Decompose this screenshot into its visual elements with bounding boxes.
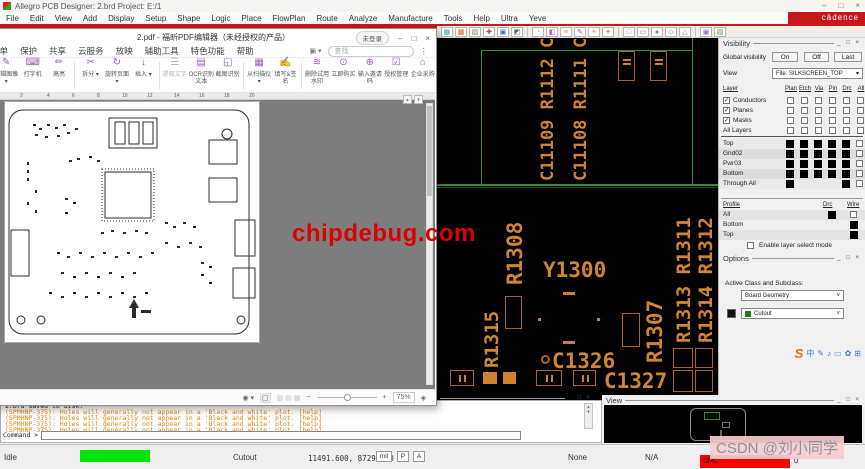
allegro-toolbar-icon[interactable]: ◔: [532, 27, 544, 37]
pdf-tool-label: 删除试用水印: [304, 72, 330, 85]
pdf-tool-icon: ✂: [77, 60, 103, 72]
refdes-column-c11108-r1111[interactable]: C11108 R1111 C1111: [573, 38, 590, 181]
visibility-cell[interactable]: [857, 97, 864, 104]
visibility-cell[interactable]: [786, 180, 794, 188]
pdf-tool-截图识别[interactable]: ◱截图识别: [214, 60, 240, 79]
allegro-menu-display[interactable]: Display: [108, 14, 134, 23]
board-outline-right: [692, 38, 693, 186]
refdes-r1308[interactable]: R1308: [505, 222, 526, 285]
visibility-cell[interactable]: [843, 107, 850, 114]
pdf-tool-icon: ⌂: [410, 60, 436, 72]
visibility-cell[interactable]: [786, 170, 794, 178]
visibility-cell[interactable]: [815, 97, 822, 104]
class-row-label: Conductors: [733, 97, 766, 104]
pdf-menu-保护[interactable]: 保护: [20, 45, 37, 57]
allegro-toolbar-icon[interactable]: □: [623, 27, 635, 37]
preview-detail: [722, 422, 730, 428]
visibility-cell[interactable]: [842, 160, 850, 168]
allegro-menu-yeve[interactable]: Yeve: [529, 14, 547, 23]
visibility-cell[interactable]: [843, 117, 850, 124]
allegro-toolbar-icon[interactable]: ●: [651, 27, 663, 37]
pdf-tool-icon: ⌨: [19, 60, 45, 72]
pdf-tool-icon: ▦: [246, 60, 272, 72]
page-nav-buttons[interactable]: ▴ ▾: [403, 95, 423, 104]
visibility-cell[interactable]: [801, 97, 808, 104]
options-window-buttons[interactable]: _ □ ×: [837, 255, 861, 261]
profile-col-wire: Wire: [847, 202, 859, 208]
layer-row-label: Bottom: [723, 170, 744, 177]
view-select[interactable]: File: SILKSCREEN_TOP▾: [772, 68, 863, 79]
pdf-tool-label: 立即购买: [330, 72, 356, 79]
pdf-tool-label: 截图识别: [214, 72, 240, 79]
pdf-title-text: 2.pdf - 福昕PDF编辑器（未经授权的产品）: [137, 32, 290, 43]
visibility-cell[interactable]: [857, 127, 864, 134]
allegro-menu-tools[interactable]: Tools: [444, 14, 463, 23]
class-row-planes: ✓Planes: [719, 106, 865, 116]
component-outline-r1308[interactable]: [505, 296, 522, 329]
grid-header-all: All: [853, 86, 865, 92]
pdf-tool-插入[interactable]: ↓插入 ▾: [130, 60, 156, 79]
allegro-window-controls: –□×: [822, 1, 860, 10]
allegro-toolbar-icon[interactable]: ▣: [497, 27, 509, 37]
visibility-cell[interactable]: [842, 170, 850, 178]
visibility-cell[interactable]: [856, 140, 863, 147]
visibility-cell[interactable]: [829, 127, 836, 134]
pdf-window-control-icon[interactable]: ×: [425, 34, 430, 43]
visibility-cell[interactable]: [800, 150, 808, 158]
visibility-cell[interactable]: [787, 117, 794, 124]
refdes-c1327[interactable]: C1327: [604, 371, 667, 392]
refdes-column-r1314-r1312[interactable]: R1314 R1312: [697, 217, 716, 343]
pdf-toolbar: ✎编辑图像 ▾⌨打字机✏高亮✂拆分 ▾↻旋转页面 ▾↓插入 ▾☰提取文字▤OCR…: [0, 58, 436, 93]
visibility-title-text: Visibility: [723, 39, 750, 48]
visibility-cell[interactable]: [857, 107, 864, 114]
pdf-titlebar[interactable]: 2.pdf - 福昕PDF编辑器（未经授权的产品） 未登录 –□×: [0, 29, 436, 45]
layout-toggle-icon[interactable]: ▣ ▾: [309, 47, 321, 55]
profile-row-label: Top: [723, 231, 733, 238]
hand-tool-icon[interactable]: ◉ ▾: [242, 394, 254, 402]
cadence-logo: cādence: [788, 12, 865, 24]
visibility-cell[interactable]: [850, 211, 857, 218]
layer-row-through-all: Through All: [719, 179, 865, 189]
pdf-menu-共享[interactable]: 共享: [49, 45, 66, 57]
component-outline[interactable]: [618, 51, 635, 81]
pdf-tool-icon: ≋: [304, 60, 330, 72]
ruler-number: 20: [249, 93, 255, 99]
pdf-tool-授权管理[interactable]: ☑授权管理: [383, 60, 409, 79]
options-panel-title: Options _ □ ×: [719, 253, 865, 263]
allegro-toolbar-icon[interactable]: ▩: [455, 27, 467, 37]
view-panel-title-text: View: [606, 396, 622, 405]
refdes-column-c11109-r1112[interactable]: C11109 R1112 C1110: [540, 38, 557, 181]
window-control-icon[interactable]: ×: [855, 1, 860, 10]
status-command: Cutout: [233, 453, 257, 462]
single-page-view-icon[interactable]: ▢: [260, 393, 271, 403]
pdf-window-control-icon[interactable]: –: [398, 34, 402, 43]
view-label: View: [723, 70, 737, 77]
ime-mode-icon[interactable]: 中: [806, 348, 814, 359]
subclass-swatch: [745, 311, 751, 317]
pdf-tool-编辑图像[interactable]: ✎编辑图像 ▾: [0, 60, 19, 85]
visibility-cell[interactable]: [850, 221, 858, 229]
board-outline-left: [481, 50, 482, 184]
visibility-cell[interactable]: [801, 107, 808, 114]
chipdebug-watermark: chipdebug.com: [292, 220, 476, 248]
visibility-cell[interactable]: [829, 97, 836, 104]
visibility-cell[interactable]: [814, 160, 822, 168]
allegro-toolbar-icon[interactable]: ✎: [574, 27, 586, 37]
pdf-bottom-bar: ◉ ▾ ▢ ▥ ▤ ▦ − + 75% ◈: [0, 389, 436, 405]
ruler-number: 10: [122, 93, 128, 99]
pdf-tool-提取文字[interactable]: ☰提取文字: [162, 60, 188, 79]
class-row-label: Masks: [733, 117, 752, 124]
pdf-tool-label: 高亮: [46, 72, 72, 79]
screen: Allegro PCB Designer: 2.brd Project: E:/…: [0, 0, 865, 469]
visibility-on-button[interactable]: On: [772, 52, 798, 62]
pdf-menu-表单[interactable]: 表单: [0, 45, 8, 57]
visibility-cell[interactable]: [801, 127, 808, 134]
visibility-cell[interactable]: [814, 150, 822, 158]
ime-menu-icon[interactable]: ⊞: [854, 349, 861, 358]
profile-col-drc: Drc: [823, 202, 832, 208]
ime-skin-icon[interactable]: ✿: [845, 349, 852, 358]
pdf-tool-label: 提取文字: [162, 72, 188, 79]
command-console[interactable]: 2.brd saved to disk.(SPMHNP-375): Holes …: [0, 400, 602, 443]
pdf-tool-label: 旋转页面 ▾: [104, 72, 130, 85]
pdf-tool-打字机[interactable]: ⌨打字机: [19, 60, 45, 79]
profile-row-top: Top: [719, 230, 865, 240]
allegro-menubar: FileEditViewAddDisplaySetupShapeLogicPla…: [0, 12, 788, 24]
ime-keyboard-icon[interactable]: ▭: [834, 349, 842, 358]
visibility-cell[interactable]: [843, 97, 850, 104]
ruler-number: 2: [20, 93, 23, 99]
pdf-tool-从扫描仪[interactable]: ▦从扫描仪 ▾: [246, 60, 272, 85]
progress-bar: [80, 450, 150, 462]
layer-row-bottom: Bottom: [719, 169, 865, 179]
pdf-menu-帮助[interactable]: 帮助: [237, 45, 254, 57]
pdf-menu-辅助工具[interactable]: 辅助工具: [145, 45, 179, 57]
refdes-column-r1313-r1311[interactable]: R1313 R1311: [675, 217, 694, 343]
allegro-menu-place[interactable]: Place: [242, 14, 262, 23]
toolbar-separator: [159, 62, 160, 89]
board-outline-shadow: [437, 187, 718, 188]
command-input[interactable]: [41, 431, 521, 440]
divider: [721, 136, 863, 137]
right-dock: Visibility _ □ × Global visibility On Of…: [718, 38, 865, 396]
layer-row-pwr03: Pwr03: [719, 159, 865, 169]
visibility-cell[interactable]: [850, 231, 858, 239]
visibility-cell[interactable]: [856, 160, 863, 167]
pcb-assembly-drawing: [5, 102, 261, 344]
enable-layer-select-checkbox[interactable]: [747, 242, 754, 249]
units-button[interactable]: mil: [376, 451, 392, 462]
pdf-tool-label: 输入邀请码: [357, 72, 383, 85]
zoom-out-icon[interactable]: −: [306, 394, 310, 401]
component-outline[interactable]: [573, 370, 596, 386]
pdf-tool-label: 打字机: [19, 72, 45, 79]
profile-row-label: Bottom: [723, 221, 744, 228]
profile-row-bottom: Bottom: [719, 220, 865, 230]
visibility-cell[interactable]: [856, 150, 863, 157]
class-select[interactable]: Board Geometry˅: [741, 290, 844, 301]
allegro-menu-logic[interactable]: Logic: [211, 14, 230, 23]
pdf-editor-window[interactable]: 2.pdf - 福昕PDF编辑器（未经授权的产品） 未登录 –□× 表单保护共享…: [0, 28, 437, 406]
pdf-menu-云服务[interactable]: 云服务: [78, 45, 104, 57]
visibility-cell[interactable]: [828, 170, 836, 178]
visibility-cell[interactable]: [787, 127, 794, 134]
visibility-cell[interactable]: [787, 107, 794, 114]
visibility-last-button[interactable]: Last: [834, 52, 862, 62]
pdf-tool-icon: ✎: [0, 60, 19, 72]
visibility-cell[interactable]: [843, 127, 850, 134]
allegro-menu-manufacture[interactable]: Manufacture: [388, 14, 432, 23]
visibility-window-buttons[interactable]: _ □ ×: [837, 40, 861, 46]
ruler-number: 14: [174, 93, 180, 99]
toolbar-separator: [527, 27, 528, 37]
pick-button[interactable]: P: [397, 451, 409, 462]
pdf-tool-label: 拆分 ▾: [77, 72, 103, 79]
layer-row-label: Through All: [723, 180, 756, 187]
allegro-toolbar-icon[interactable]: ✦: [602, 27, 614, 37]
visibility-cell[interactable]: [800, 160, 808, 168]
more-menu-icon[interactable]: ⋮: [420, 46, 429, 57]
toolbar-separator: [695, 27, 696, 37]
pdf-tool-icon: ↻: [104, 60, 130, 72]
pdf-tool-label: 企业采购: [410, 72, 436, 79]
visibility-cell[interactable]: [856, 170, 863, 177]
pdf-menu-放映[interactable]: 放映: [116, 45, 133, 57]
layer-row-label: Top: [723, 140, 733, 147]
allegro-toolbar-icon[interactable]: ▤: [714, 27, 726, 37]
allegro-toolbar-icon[interactable]: ◧: [546, 27, 558, 37]
pdf-tool-icon: ✏: [46, 60, 72, 72]
pdf-tool-icon: ⊕: [357, 60, 383, 72]
pcb-canvas[interactable]: C11109 R1112 C1110 C11108 R1111 C1111 R1…: [437, 38, 718, 400]
window-control-icon[interactable]: –: [822, 1, 826, 10]
allegro-toolbar-icon[interactable]: ▧: [469, 27, 481, 37]
allegro-toolbar-icon[interactable]: ✚: [483, 27, 495, 37]
class-checkbox[interactable]: ✓: [723, 107, 730, 114]
current-view-rect: [704, 412, 720, 420]
application-mode-button[interactable]: A: [413, 451, 425, 462]
visibility-cell[interactable]: [842, 140, 850, 148]
visibility-cell[interactable]: [829, 107, 836, 114]
class-row-label: All Layers: [723, 127, 752, 134]
ruler-number: 16: [199, 93, 205, 99]
component-outline[interactable]: [673, 348, 693, 368]
allegro-menu-ultra[interactable]: Ultra: [501, 14, 518, 23]
visibility-cell[interactable]: [815, 117, 822, 124]
allegro-app-icon: [3, 2, 11, 10]
pdf-tool-输入邀请码[interactable]: ⊕输入邀请码: [357, 60, 383, 85]
component-outline-r1307[interactable]: [622, 313, 640, 347]
component-outline[interactable]: [450, 370, 474, 386]
class-select-value: Board Geometry: [745, 291, 789, 300]
pdf-page[interactable]: [4, 101, 260, 343]
profile-row-all: All: [719, 210, 865, 220]
zoom-value[interactable]: 75%: [393, 392, 415, 403]
ruler-number: 12: [147, 93, 153, 99]
visibility-cell[interactable]: [815, 127, 822, 134]
expand-icon[interactable]: ▾: [414, 95, 423, 104]
pdf-tool-企业采购[interactable]: ⌂企业采购: [410, 60, 436, 79]
sogou-logo-icon[interactable]: S: [795, 346, 804, 361]
allegro-toolbar-icon[interactable]: ◇: [665, 27, 677, 37]
visibility-cell[interactable]: [814, 170, 822, 178]
layer-row-label: Pwr03: [723, 160, 741, 167]
console-scrollbar[interactable]: ▲▼: [584, 403, 593, 429]
pdf-tool-label: 编辑图像 ▾: [0, 72, 19, 85]
visibility-off-button[interactable]: Off: [804, 52, 829, 62]
ruler-number: 18: [224, 93, 230, 99]
allegro-menu-flowplan[interactable]: FlowPlan: [273, 14, 306, 23]
component-outline[interactable]: [650, 51, 667, 81]
pdf-menu-特色功能[interactable]: 特色功能: [191, 45, 225, 57]
pdf-tool-旋转页面[interactable]: ↻旋转页面 ▾: [104, 60, 130, 85]
ime-pen-icon[interactable]: ✎: [817, 349, 824, 358]
pdf-tool-删除试用水印[interactable]: ≋删除试用水印: [304, 60, 330, 85]
allegro-toolbar-icon[interactable]: ☀: [588, 27, 600, 37]
allegro-titlebar: Allegro PCB Designer: 2.brd Project: E:/…: [0, 0, 865, 12]
subclass-color-swatch[interactable]: [727, 309, 736, 318]
allegro-menu-route[interactable]: Route: [316, 14, 337, 23]
crystal-pad: [563, 292, 575, 295]
allegro-toolbar-icon[interactable]: ▣: [700, 27, 712, 37]
allegro-toolbar-icon[interactable]: ▭: [637, 27, 649, 37]
status-na: N/A: [645, 453, 658, 462]
allegro-menu-file[interactable]: File: [6, 14, 19, 23]
collapse-icon[interactable]: ▴: [403, 95, 412, 104]
visibility-cell[interactable]: [829, 117, 836, 124]
visibility-cell[interactable]: [800, 170, 808, 178]
pdf-tool-label: OCR识别文本: [188, 72, 214, 85]
class-row-masks: ✓Masks: [719, 116, 865, 126]
pdf-tool-OCR识别文本[interactable]: ▤OCR识别文本: [188, 60, 214, 85]
horizontal-ruler: 2468101214161820: [0, 93, 435, 100]
pdf-window-controls[interactable]: –□×: [398, 34, 430, 43]
pdf-tool-icon: ↓: [130, 60, 156, 72]
pdf-tool-立即购买[interactable]: ⊙立即购买: [330, 60, 356, 79]
ruler-number: 4: [47, 93, 50, 99]
visibility-cell[interactable]: [856, 180, 863, 187]
toolbar-separator: [243, 62, 244, 89]
toolbar-separator: [74, 62, 75, 89]
allegro-menu-help[interactable]: Help: [473, 14, 489, 23]
console-messages: 2.brd saved to disk.(SPMHNP-375): Holes …: [5, 403, 581, 433]
allegro-menu-analyze[interactable]: Analyze: [349, 14, 377, 23]
layer-row-label: Gnd02: [723, 150, 743, 157]
class-checkbox[interactable]: ✓: [723, 97, 730, 104]
search-input[interactable]: [328, 46, 414, 57]
visibility-panel-title: Visibility _ □ ×: [719, 38, 865, 48]
component-outline[interactable]: [695, 370, 713, 392]
active-class-label: Active Class and Subclass:: [725, 280, 803, 287]
component-pad: [503, 372, 516, 384]
allegro-toolbar-icon[interactable]: ◩: [511, 27, 523, 37]
allegro-toolbar-icon[interactable]: △: [679, 27, 691, 37]
status-mode: Idle: [4, 453, 17, 462]
allegro-menu-add[interactable]: Add: [83, 14, 97, 23]
ime-mic-icon[interactable]: ♪: [827, 349, 831, 358]
visibility-cell[interactable]: [787, 97, 794, 104]
fullscreen-icon[interactable]: ◈: [421, 394, 426, 402]
visibility-cell[interactable]: [857, 117, 864, 124]
visibility-cell[interactable]: [800, 140, 808, 148]
zoom-slider[interactable]: [317, 397, 377, 398]
visibility-cell[interactable]: [786, 150, 794, 158]
visibility-cell[interactable]: [828, 140, 836, 148]
pdf-tool-label: 授权管理: [383, 72, 409, 79]
pdf-tool-填写&签名[interactable]: ✍填写&签名: [272, 60, 298, 85]
allegro-menu-view[interactable]: View: [55, 14, 72, 23]
allegro-menu-setup[interactable]: Setup: [145, 14, 166, 23]
visibility-cell[interactable]: [801, 117, 808, 124]
component-outline[interactable]: [673, 370, 693, 392]
layer-header: Layer: [723, 86, 738, 92]
allegro-toolbar-icon[interactable]: ≡: [560, 27, 572, 37]
pdf-tool-label: 插入 ▾: [130, 72, 156, 79]
command-prompt-label: Command >: [3, 432, 38, 438]
pdf-tool-拆分[interactable]: ✂拆分 ▾: [77, 60, 103, 79]
pdf-tool-icon: ▤: [188, 60, 214, 72]
class-row-conductors: ✓Conductors: [719, 96, 865, 106]
view-select-value: File: SILKSCREEN_TOP: [776, 69, 843, 78]
view-window-buttons[interactable]: _ □ ×: [837, 397, 861, 403]
component-outline[interactable]: [695, 348, 713, 368]
pdf-tool-高亮[interactable]: ✏高亮: [46, 60, 72, 79]
allegro-title: Allegro PCB Designer: 2.brd Project: E:/…: [15, 2, 161, 11]
visibility-cell[interactable]: [815, 107, 822, 114]
refdes-r1307[interactable]: R1307: [645, 300, 666, 363]
login-button[interactable]: 未登录: [356, 31, 390, 45]
component-outline[interactable]: [536, 370, 562, 386]
refdes-r1315[interactable]: R1315: [483, 311, 502, 368]
sogou-input-toolbar[interactable]: S 中 ✎ ♪ ▭ ✿ ⊞: [795, 346, 861, 361]
visibility-cell[interactable]: [828, 211, 836, 219]
visibility-cell[interactable]: [842, 180, 850, 188]
options-title-text: Options: [723, 254, 749, 263]
visibility-cell[interactable]: [786, 160, 794, 168]
page-layout-icons[interactable]: ▥ ▤ ▦: [277, 394, 301, 402]
visibility-cell[interactable]: [842, 150, 850, 158]
visibility-cell[interactable]: [786, 140, 794, 148]
zoom-in-icon[interactable]: +: [383, 394, 387, 401]
pdf-tool-label: 填写&签名: [272, 72, 298, 85]
status-filter: None: [568, 453, 587, 462]
pdf-window-control-icon[interactable]: □: [411, 34, 416, 43]
visibility-cell[interactable]: [828, 160, 836, 168]
global-visibility-label: Global visibility: [723, 54, 766, 61]
layer-row-gnd02: Gnd02: [719, 149, 865, 159]
class-row-all-layers: All Layers: [719, 126, 865, 136]
crystal-pad: [563, 341, 575, 344]
profile-row-label: All: [723, 211, 730, 218]
window-control-icon[interactable]: □: [838, 1, 843, 10]
allegro-menu-shape[interactable]: Shape: [177, 14, 200, 23]
enable-layer-select-label: Enable layer select mode: [759, 242, 832, 249]
pdf-tool-icon: ⊙: [330, 60, 356, 72]
refdes-y1300[interactable]: Y1300: [543, 260, 606, 281]
visibility-cell[interactable]: [828, 150, 836, 158]
subclass-select-value: Cutout: [754, 309, 772, 319]
subclass-select[interactable]: Cutout ˅: [741, 308, 844, 319]
class-checkbox[interactable]: ✓: [723, 117, 730, 124]
pdf-tool-icon: ☑: [383, 60, 409, 72]
class-row-label: Planes: [733, 107, 753, 114]
allegro-toolbar-icon[interactable]: ▦: [441, 27, 453, 37]
visibility-cell[interactable]: [814, 140, 822, 148]
allegro-menu-edit[interactable]: Edit: [30, 14, 44, 23]
